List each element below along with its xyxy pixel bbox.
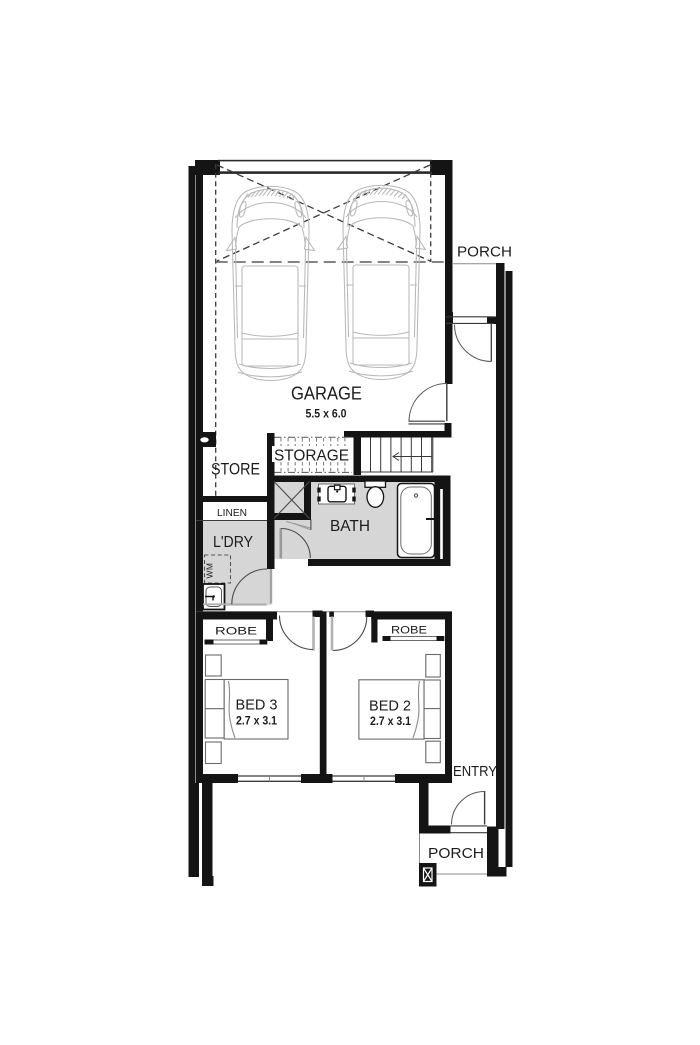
svg-text:BED 2: BED 2 — [369, 698, 411, 715]
svg-text:5.5 x 6.0: 5.5 x 6.0 — [306, 407, 347, 421]
svg-text:ROBE: ROBE — [391, 625, 427, 637]
svg-text:ENTRY: ENTRY — [453, 764, 497, 780]
svg-text:STORAGE: STORAGE — [274, 448, 349, 465]
svg-text:STORE: STORE — [211, 461, 260, 479]
svg-text:L'DRY: L'DRY — [213, 534, 253, 551]
svg-text:PORCH: PORCH — [428, 846, 484, 862]
svg-text:BATH: BATH — [330, 518, 370, 535]
svg-text:WM: WM — [205, 563, 215, 579]
svg-text:BED 3: BED 3 — [236, 697, 278, 714]
svg-text:2.7 x 3.1: 2.7 x 3.1 — [236, 716, 278, 728]
svg-text:GARAGE: GARAGE — [291, 383, 362, 404]
svg-text:2.7 x 3.1: 2.7 x 3.1 — [370, 716, 412, 728]
svg-text:ROBE: ROBE — [215, 626, 257, 638]
svg-text:LINEN: LINEN — [217, 507, 247, 519]
svg-text:PORCH: PORCH — [457, 245, 512, 261]
